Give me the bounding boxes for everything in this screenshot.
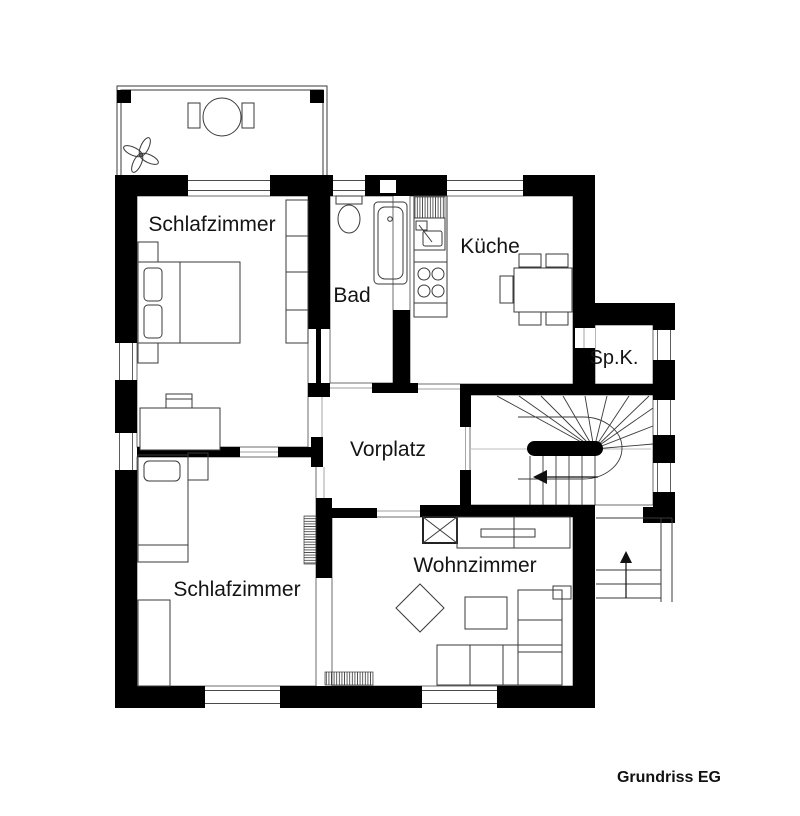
wardrobe <box>138 600 170 686</box>
armchair <box>396 584 444 632</box>
toilet <box>336 196 362 233</box>
terrace <box>117 86 327 177</box>
terrace-table-set <box>188 98 254 136</box>
pillow <box>144 305 162 338</box>
coffee-table <box>465 597 507 629</box>
entrance-arrow <box>620 551 632 598</box>
room-label-pantry: Sp.K. <box>590 347 639 369</box>
floor-plan-caption: Grundriss EG <box>617 769 721 786</box>
entrance-steps <box>596 570 661 598</box>
kitchen-furniture <box>414 196 572 325</box>
floor-plan-page: Schlafzimmer Bad Küche Sp.K. Vorplatz Sc… <box>0 0 800 816</box>
floor-plan-drawing: Schlafzimmer Bad Küche Sp.K. Vorplatz Sc… <box>0 0 800 816</box>
room-label-bedroom-top: Schlafzimmer <box>148 213 275 236</box>
room-label-kitchen: Küche <box>460 235 520 258</box>
radiator <box>325 672 373 685</box>
terrace-post-left <box>117 90 131 103</box>
bathtub <box>374 202 407 284</box>
entrance-porch <box>596 518 672 602</box>
dining-table <box>514 268 572 312</box>
dining-chair <box>500 276 513 303</box>
nightstand <box>138 343 158 363</box>
bedroom-bottom-furniture <box>138 453 373 686</box>
sofa-sectional <box>437 590 562 685</box>
room-label-bathroom: Bad <box>333 284 370 307</box>
sideboard <box>457 517 570 548</box>
dining-chair <box>546 312 568 325</box>
terrace-plant <box>122 136 160 174</box>
top-wall-niche <box>380 180 396 193</box>
tv-cabinet-x-box <box>423 517 457 543</box>
bathroom-fixtures <box>336 196 407 284</box>
room-label-bedroom-bottom: Schlafzimmer <box>173 578 300 601</box>
room-label-hallway: Vorplatz <box>350 438 426 461</box>
desk <box>140 408 220 450</box>
dining-chair <box>546 254 568 267</box>
stove <box>414 262 447 303</box>
dining-chair <box>519 254 541 267</box>
wardrobe <box>286 200 308 343</box>
double-bed <box>138 262 240 343</box>
pillow <box>144 268 162 301</box>
living-room-furniture <box>396 517 571 685</box>
dining-table-set <box>500 254 572 325</box>
pillow <box>144 461 180 481</box>
pantry-door-gap <box>575 328 595 348</box>
radiator <box>304 516 316 564</box>
terrace-post-right <box>310 90 324 103</box>
kitchen-sink <box>414 218 445 250</box>
dining-chair <box>519 312 541 325</box>
stair-newel <box>527 441 603 456</box>
bedroom-top-furniture <box>138 200 308 450</box>
staircase <box>470 396 653 505</box>
nightstand <box>138 242 158 262</box>
room-label-living-room: Wohnzimmer <box>413 554 536 577</box>
